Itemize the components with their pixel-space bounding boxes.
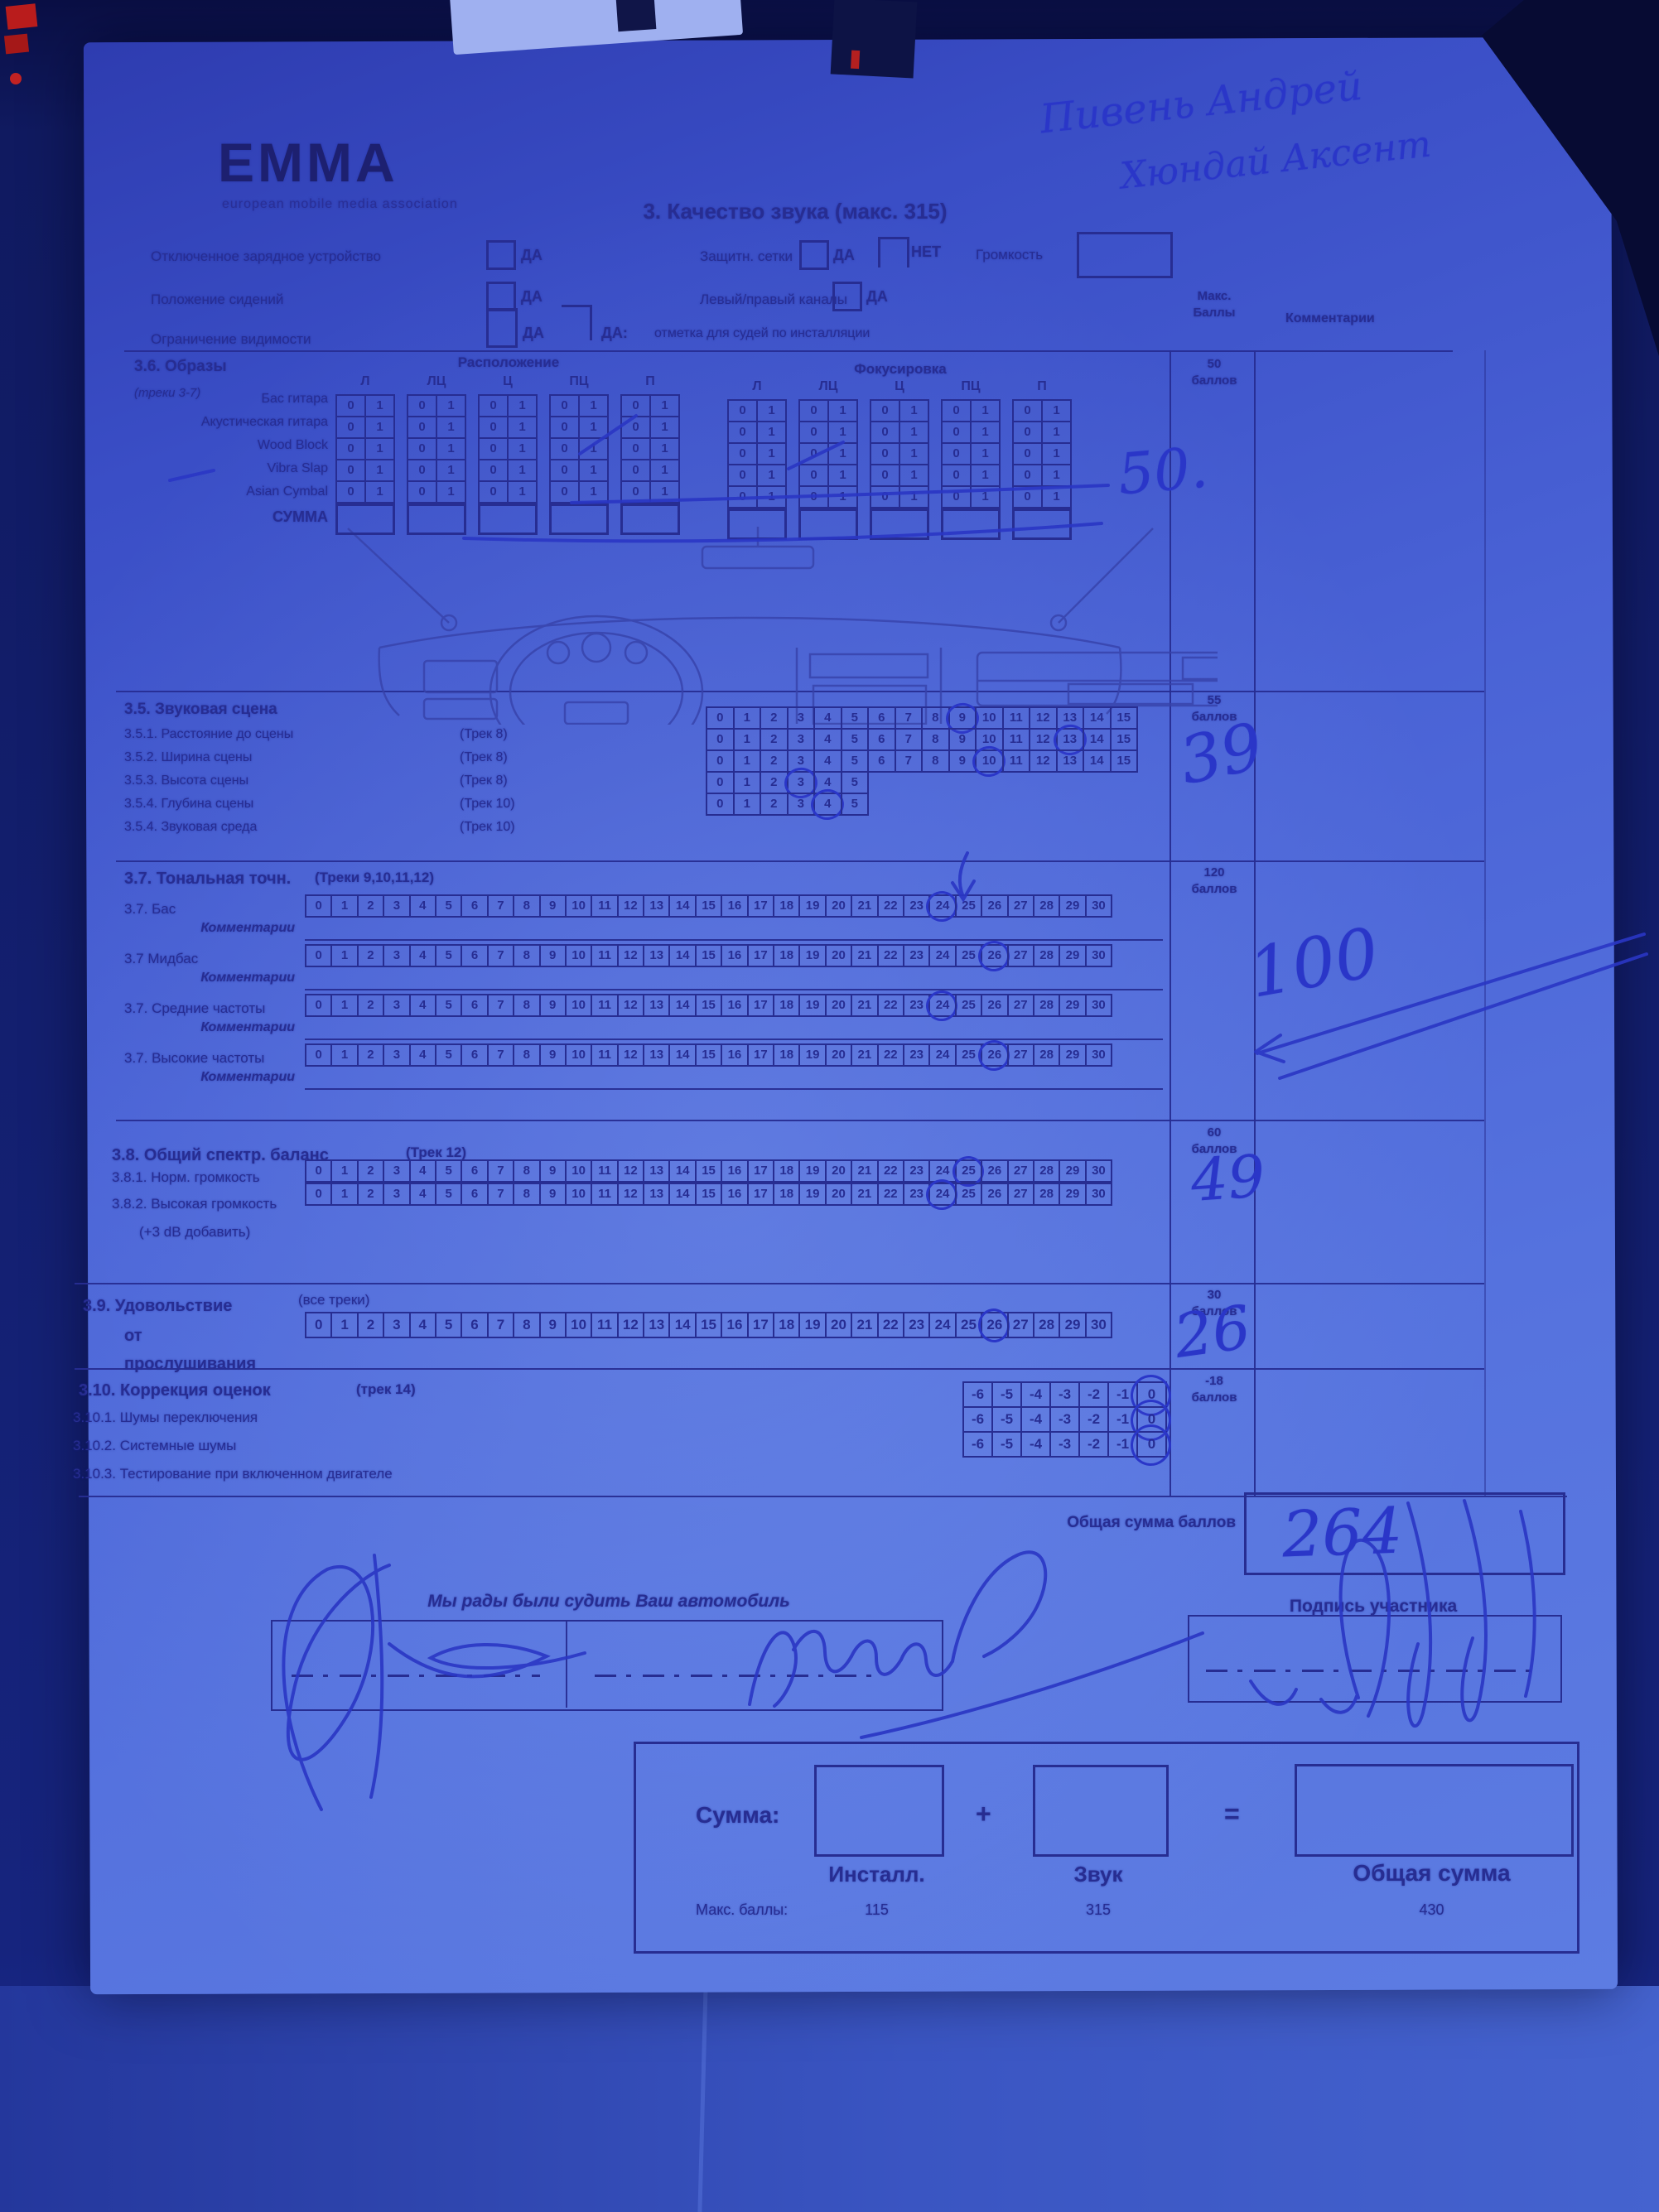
grid-cell: 0	[620, 437, 651, 460]
scale-cell: -2	[1078, 1406, 1109, 1433]
grid-cell-pair: 01	[727, 399, 787, 422]
grilles-label: Защитн. сетки	[700, 248, 793, 265]
grid-cell: 0	[549, 437, 580, 460]
grid-cell-pair: 01	[941, 442, 1001, 465]
grid-cell: 1	[827, 399, 858, 422]
grid-cell-pair: 01	[870, 442, 929, 465]
grid-cell-pair: 01	[335, 437, 395, 460]
scale-cell: 8	[513, 994, 540, 1017]
scale-cell: 1	[330, 1043, 358, 1067]
grid-sum-box	[478, 504, 538, 535]
comments-line	[305, 939, 1163, 941]
scale-cell: 6	[867, 728, 896, 751]
scale-cell: 12	[1029, 749, 1058, 773]
scale-cell: 1	[330, 944, 358, 967]
grid-cell: 0	[478, 459, 509, 482]
grid-sum-box	[620, 504, 680, 535]
scale-cell: 10	[565, 944, 592, 967]
scale-cell: 2	[760, 728, 789, 751]
handwritten-score-36: 50.	[1116, 435, 1211, 508]
channels-label: Левый/правый каналы	[700, 292, 847, 308]
focus-grid: Л0101010101ЛЦ0101010101Ц0101010101ПЦ0101…	[727, 379, 1072, 540]
scale-cell: 13	[643, 944, 670, 967]
grid-cell-pair: 01	[620, 416, 680, 439]
grid-cell: 0	[335, 459, 366, 482]
grid-cell-pair: 01	[407, 437, 466, 460]
scale-cell: 25	[955, 1159, 982, 1183]
judge-signature-line	[292, 1675, 540, 1677]
grid-column-header: ПЦ	[941, 379, 1001, 399]
divider	[116, 860, 1484, 862]
scale-cell: 22	[877, 994, 904, 1017]
grid-cell: 0	[478, 394, 509, 417]
sound-label: Звук	[1033, 1862, 1164, 1887]
table-surface	[0, 1986, 1659, 2212]
scale-cell: 21	[851, 894, 878, 918]
scale-cell: 12	[617, 1312, 644, 1338]
scale-cell: 3	[383, 894, 410, 918]
grid-cell-pair: 01	[549, 459, 609, 482]
summary-sum-label: Сумма:	[696, 1802, 779, 1829]
grid-cell: 1	[364, 459, 395, 482]
grilles-yes-label: ДА	[833, 247, 855, 264]
grid-column-header: Л	[335, 374, 395, 394]
scale-cell: 10	[565, 1159, 592, 1183]
section-37-tracks: (Треки 9,10,11,12)	[315, 870, 434, 886]
charger-yes-checkbox	[486, 240, 516, 270]
scale-cell: 8	[921, 728, 950, 751]
grid-cell: 0	[798, 442, 829, 465]
scale-cell: 18	[773, 1043, 800, 1067]
grid-cell: 1	[578, 480, 609, 504]
judge-note-checkbox	[562, 305, 592, 340]
scale-cell: 7	[487, 894, 514, 918]
grid-sum-box	[870, 508, 929, 540]
grid-column: П0101010101	[1012, 379, 1072, 540]
section-38-title: 3.8. Общий спектр. баланс	[112, 1146, 329, 1165]
scale-cell: 13	[643, 1312, 670, 1338]
grid-cell-pair: 01	[549, 394, 609, 417]
divider	[75, 1368, 1484, 1370]
scale-cell: 6	[461, 1043, 488, 1067]
scale-cell: 29	[1059, 1043, 1086, 1067]
scale-cell: 9	[948, 706, 977, 730]
scale-cell: 11	[591, 894, 618, 918]
grid-cell-pair: 01	[1012, 485, 1072, 508]
scale-switching-noise: -6-5-4-3-2-10	[962, 1381, 1167, 1408]
scale-cell: 11	[591, 994, 618, 1017]
grid-cell: 1	[507, 394, 538, 417]
scale-cell: 1	[330, 994, 358, 1017]
scale-cell: 15	[695, 1159, 722, 1183]
scale-cell: 5	[841, 749, 870, 773]
grid-cell: 1	[756, 442, 787, 465]
grid-cell: 0	[941, 421, 972, 444]
grid-cell: 1	[649, 394, 680, 417]
scale-mids: 0123456789101112131415161718192021222324…	[305, 994, 1112, 1017]
grid-cell-pair: 01	[1012, 464, 1072, 487]
grid-cell: 0	[727, 442, 758, 465]
grid-cell: 1	[827, 421, 858, 444]
scale-cell: 16	[721, 1312, 748, 1338]
grid-cell: 1	[578, 437, 609, 460]
row-track: (Трек 8)	[460, 750, 508, 765]
grid-cell: 1	[970, 485, 1001, 508]
grid-cell: 1	[899, 442, 929, 465]
grid-cell-pair: 01	[727, 485, 787, 508]
scoresheet-photo: EMMA european mobile media association 3…	[0, 0, 1659, 2212]
scale-cell: 26	[981, 1312, 1008, 1338]
scale-cell: 19	[798, 1043, 826, 1067]
grid-cell: 0	[727, 464, 758, 487]
scale-cell: 14	[668, 994, 696, 1017]
grid-cell: 0	[798, 399, 829, 422]
scale-cell: 21	[851, 1159, 878, 1183]
scale-cell: 14	[1083, 706, 1112, 730]
scale-cell: 9	[539, 1159, 567, 1183]
scale-cell: 8	[921, 749, 950, 773]
scale-cell: 0	[305, 1183, 332, 1206]
scale-cell: 4	[813, 728, 842, 751]
scale-cell: 28	[1033, 1159, 1060, 1183]
scale-cell: 26	[981, 944, 1008, 967]
grid-cell-pair: 01	[407, 480, 466, 504]
grid-cell: 1	[507, 416, 538, 439]
comments-line	[305, 1088, 1163, 1090]
scale-cell: 8	[513, 944, 540, 967]
scale-cell: -6	[962, 1431, 993, 1458]
section-39-tracks: (все треки)	[298, 1292, 369, 1308]
scale-cell: 4	[409, 944, 436, 967]
scale-cell: 6	[867, 749, 896, 773]
comments-label: Комментарии	[129, 971, 295, 986]
scale-cell: 27	[1007, 994, 1034, 1017]
grid-cell: 1	[1041, 399, 1072, 422]
scale-cell: 15	[695, 1312, 722, 1338]
handwritten-score-38: 49	[1189, 1142, 1267, 1215]
grilles-yes-checkbox	[799, 240, 829, 270]
scale-cell: 1	[733, 749, 762, 773]
scale-cell: -3	[1049, 1381, 1080, 1408]
scale-cell: 18	[773, 994, 800, 1017]
scale-cell: 22	[877, 894, 904, 918]
scale-cell: 11	[591, 1183, 618, 1206]
scale-cell: 10	[565, 994, 592, 1017]
divider	[75, 1283, 1484, 1284]
scale-cell: 6	[461, 1159, 488, 1183]
grid-cell: 1	[649, 437, 680, 460]
grid-cell: 0	[798, 485, 829, 508]
scale-cell: 9	[539, 1183, 567, 1206]
section-35-title: 3.5. Звуковая сцена	[124, 701, 277, 719]
grid-cell: 1	[970, 442, 1001, 465]
photo-artifact-card-mark	[615, 0, 656, 31]
seats-yes-checkbox	[486, 282, 516, 311]
scale-cell: 0	[305, 1159, 332, 1183]
row-label: 3.5.1. Расстояние до сцены	[124, 727, 293, 742]
scale-cell: 5	[841, 771, 870, 794]
grid-cell-pair: 01	[335, 394, 395, 417]
grid-cell-pair: 01	[549, 480, 609, 504]
scale-cell: 7	[895, 728, 924, 751]
scale-cell: 2	[357, 994, 384, 1017]
row-label: 3.10.2. Системные шумы	[73, 1438, 236, 1454]
scale-cell: 28	[1033, 944, 1060, 967]
comments-line	[305, 989, 1163, 990]
grid-column-header: ЛЦ	[407, 374, 466, 394]
scale-cell: 21	[851, 994, 878, 1017]
scale-cell: 12	[617, 894, 644, 918]
scale-cell: 2	[760, 706, 789, 730]
scale-cell: 15	[695, 1183, 722, 1206]
judge-signature-box	[271, 1620, 943, 1711]
scale-cell: 17	[747, 1183, 774, 1206]
scale-cell: 19	[798, 1183, 826, 1206]
scale-cell: 27	[1007, 1312, 1034, 1338]
scale-cell: 8	[513, 1043, 540, 1067]
scale-cell: 4	[409, 1183, 436, 1206]
row-label: 3.5.2. Ширина сцены	[124, 750, 252, 765]
judge-note-text: отметка для судей по инсталляции	[654, 326, 870, 341]
scale-cell: 23	[903, 944, 930, 967]
scale-cell: 9	[539, 994, 567, 1017]
row-label: 3.5.4. Глубина сцены	[124, 797, 253, 812]
row-label: 3.7. Высокие частоты	[124, 1050, 264, 1067]
row-label: 3.7 Мидбас	[124, 951, 198, 967]
scale-cell: 1	[733, 728, 762, 751]
grid-cell: 1	[364, 394, 395, 417]
row-label: 3.5.3. Высота сцены	[124, 773, 248, 788]
emma-logo-subtitle: european mobile media association	[222, 197, 458, 212]
scale-cell: 1	[733, 793, 762, 816]
scale-cell: 11	[591, 1043, 618, 1067]
scale-cell: 0	[706, 771, 735, 794]
scale-cell: 21	[851, 1043, 878, 1067]
row-label: 3.8.1. Норм. громкость	[112, 1169, 260, 1186]
scale-cell: 0	[706, 706, 735, 730]
grid-column: Ц0101010101	[870, 379, 929, 540]
grid-sum-box	[549, 504, 609, 535]
channels-yes-label: ДА	[866, 288, 888, 306]
grid-cell: 0	[727, 421, 758, 444]
scale-cell: 10	[565, 1312, 592, 1338]
scale-cell: 28	[1033, 1183, 1060, 1206]
install-label: Инсталл.	[814, 1862, 939, 1887]
scale-cell: 10	[975, 749, 1004, 773]
grilles-no-checkbox	[878, 237, 909, 267]
scale-cell: 24	[928, 1043, 956, 1067]
grid-cell: 1	[507, 480, 538, 504]
scale-cell: 24	[928, 944, 956, 967]
scale-cell: 9	[539, 1043, 567, 1067]
scale-cell: 2	[760, 749, 789, 773]
grid-cell-pair: 01	[407, 416, 466, 439]
grid-cell: 1	[1041, 464, 1072, 487]
scale-cell: 5	[435, 1183, 462, 1206]
scale-cell: 8	[513, 1183, 540, 1206]
scale-cell: 3	[787, 706, 816, 730]
grid-cell: 1	[436, 459, 466, 482]
scale-cell: 7	[895, 749, 924, 773]
scale-cell: 30	[1085, 894, 1112, 918]
charger-label: Отключенное зарядное устройство	[151, 248, 381, 265]
scale-cell: 15	[1110, 706, 1139, 730]
grid-cell: 0	[335, 480, 366, 504]
scale-cell: 13	[643, 1159, 670, 1183]
scale-cell: 4	[813, 706, 842, 730]
grid-cell: 1	[827, 464, 858, 487]
scale-3-5-4: 012345	[706, 771, 869, 794]
sum-label: СУММА	[124, 508, 328, 526]
scale-cell: 1	[330, 894, 358, 918]
scale-cell: 30	[1085, 944, 1112, 967]
instrument-label: Wood Block	[124, 438, 328, 453]
grid-cell: 0	[478, 416, 509, 439]
scale-cell: 15	[695, 1043, 722, 1067]
grid-cell: 0	[870, 442, 900, 465]
scale-cell: 13	[643, 894, 670, 918]
comments-column-line	[1254, 350, 1256, 1496]
scale-cell: -6	[962, 1406, 993, 1433]
grid-sum-box	[727, 508, 787, 540]
scale-cell: 9	[948, 728, 977, 751]
row-track: (Трек 8)	[460, 773, 508, 788]
scale-cell: 17	[747, 944, 774, 967]
scale-cell: 19	[798, 944, 826, 967]
grid-cell: 0	[407, 437, 437, 460]
section-310-title: 3.10. Коррекция оценок	[79, 1381, 271, 1400]
scale-cell: 6	[461, 944, 488, 967]
grid-cell-pair: 01	[478, 394, 538, 417]
grid-cell: 1	[899, 485, 929, 508]
grid-cell: 0	[1012, 421, 1043, 444]
scale-3-5-5: 012345	[706, 793, 869, 816]
scale-cell: 30	[1085, 1312, 1112, 1338]
scale-cell: 20	[825, 894, 852, 918]
scale-cell: 9	[539, 944, 567, 967]
grid-cell-pair: 01	[798, 421, 858, 444]
scale-cell: 15	[695, 994, 722, 1017]
row-track: (Трек 10)	[460, 797, 515, 812]
grid-cell-pair: 01	[941, 421, 1001, 444]
scale-cell: 18	[773, 944, 800, 967]
section-310-max: -18 баллов	[1171, 1373, 1257, 1405]
scale-cell: 26	[981, 1183, 1008, 1206]
scale-cell: 25	[955, 894, 982, 918]
scale-cell: 3	[383, 944, 410, 967]
grid-cell: 0	[1012, 442, 1043, 465]
grid-cell-pair: 01	[1012, 399, 1072, 422]
grid-cell-pair: 01	[727, 442, 787, 465]
car-dashboard-sketch	[273, 522, 1218, 725]
scale-cell: -3	[1049, 1406, 1080, 1433]
participant-caption: Подпись участника	[1188, 1597, 1559, 1617]
grid-cell-pair: 01	[870, 485, 929, 508]
scale-cell: 3	[383, 994, 410, 1017]
grid-cell: 1	[1041, 421, 1072, 444]
section-37-max: 120 баллов	[1171, 865, 1257, 897]
grid-cell: 0	[1012, 464, 1043, 487]
grid-cell: 0	[1012, 399, 1043, 422]
scale-cell: 18	[773, 1312, 800, 1338]
grid-column: ЛЦ0101010101	[407, 374, 466, 535]
grid-cell: 0	[335, 394, 366, 417]
scale-cell: 23	[903, 1312, 930, 1338]
judge-signature-line	[595, 1675, 875, 1677]
scale-cell: 2	[357, 1159, 384, 1183]
grilles-no-label: НЕТ	[911, 243, 941, 261]
scale-cell: 4	[409, 1159, 436, 1183]
scale-cell: 29	[1059, 944, 1086, 967]
grid-column-header: Ц	[478, 374, 538, 394]
scale-cell: 14	[1083, 749, 1112, 773]
grid-cell: 1	[970, 399, 1001, 422]
grid-cell: 1	[756, 399, 787, 422]
scale-cell: -2	[1078, 1381, 1109, 1408]
scale-cell: 15	[695, 944, 722, 967]
section-37-title: 3.7. Тональная точн.	[124, 870, 291, 889]
grid-cell-pair: 01	[478, 437, 538, 460]
scale-cell: 16	[721, 1043, 748, 1067]
scale-cell: 17	[747, 994, 774, 1017]
scale-cell: 11	[1002, 749, 1031, 773]
scale-cell: 21	[851, 944, 878, 967]
scale-cell: 18	[773, 1159, 800, 1183]
scale-cell: -4	[1020, 1431, 1051, 1458]
row-label: 3.10.1. Шумы переключения	[73, 1410, 258, 1426]
scale-cell: 0	[305, 944, 332, 967]
grid-cell: 1	[827, 442, 858, 465]
scale-cell: 20	[825, 994, 852, 1017]
scale-cell: 13	[643, 1043, 670, 1067]
comments-line	[305, 1039, 1163, 1040]
grid-column-header: ЛЦ	[798, 379, 858, 399]
scale-cell: 7	[487, 1043, 514, 1067]
scale-cell: 21	[851, 1183, 878, 1206]
instrument-label: Vibra Slap	[124, 461, 328, 476]
grid-sum-box	[798, 508, 858, 540]
max-install: 115	[814, 1901, 939, 1919]
grid-cell: 0	[727, 399, 758, 422]
instrument-label: Бас гитара	[124, 392, 328, 407]
scale-cell: 22	[877, 1312, 904, 1338]
scale-cell: 19	[798, 894, 826, 918]
scale-midbass: 0123456789101112131415161718192021222324…	[305, 944, 1112, 967]
scale-cell: 11	[591, 1159, 618, 1183]
scale-cell: 30	[1085, 1043, 1112, 1067]
scale-cell: -5	[991, 1406, 1022, 1433]
scale-cell: 13	[1056, 749, 1085, 773]
scale-cell: 28	[1033, 894, 1060, 918]
grid-cell: 0	[620, 416, 651, 439]
grid-column-header: Ц	[870, 379, 929, 399]
handwritten-total: 264	[1280, 1493, 1403, 1571]
scale-cell: 25	[955, 1183, 982, 1206]
grid-cell: 1	[649, 480, 680, 504]
max-sound: 315	[1033, 1901, 1164, 1919]
grid-cell: 0	[549, 416, 580, 439]
scale-cell: 0	[1136, 1431, 1167, 1458]
scale-cell: -6	[962, 1381, 993, 1408]
grid-cell-pair: 01	[1012, 442, 1072, 465]
scale-system-noise: -6-5-4-3-2-10	[962, 1406, 1167, 1433]
judge-caption: Мы рады были судить Ваш автомобиль	[273, 1592, 944, 1612]
grid-cell: 0	[407, 459, 437, 482]
scale-cell: 10	[565, 894, 592, 918]
scale-cell: 9	[539, 894, 567, 918]
visibility-label: Ограничение видимости	[151, 331, 311, 348]
scale-cell: 20	[825, 1159, 852, 1183]
